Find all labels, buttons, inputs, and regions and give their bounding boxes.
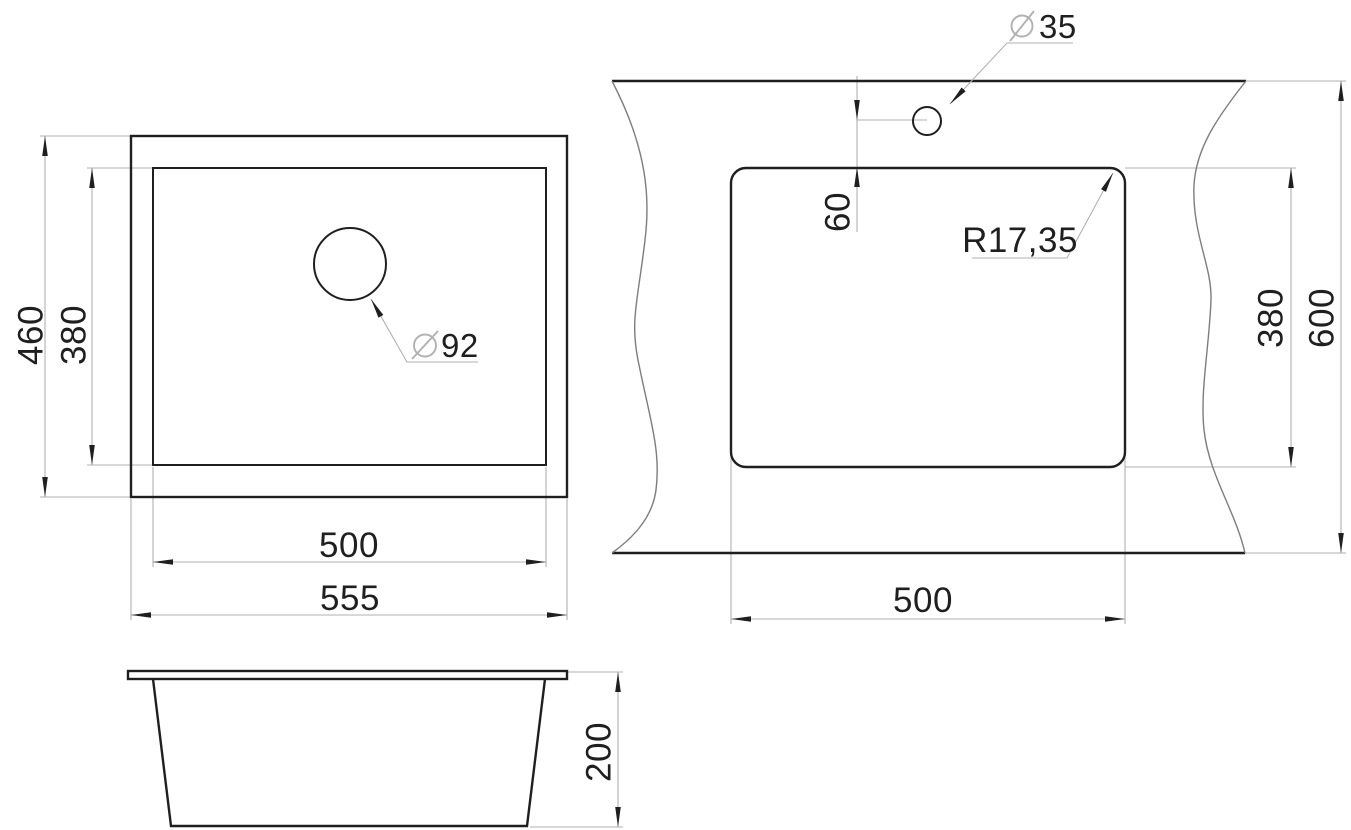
diameter-symbol-icon (1010, 11, 1034, 41)
dim-label-height: 200 (580, 722, 619, 782)
dim-label-cutout-width: 500 (893, 581, 953, 620)
faucet-diameter-label: 35 (1039, 8, 1077, 45)
cutout-view: 35 R17,35 60 380 600 500 (612, 8, 1346, 624)
diameter-symbol-icon (412, 331, 438, 359)
break-line-right (1194, 81, 1246, 553)
sink-bowl-profile (153, 679, 545, 826)
dim-label-faucet-offset: 60 (819, 192, 858, 232)
corner-radius-label: R17,35 (962, 221, 1078, 260)
dim-label-cutout-depth: 380 (1252, 288, 1291, 348)
dim-label-inner-width: 500 (319, 526, 379, 565)
sink-rim-profile (128, 671, 567, 679)
drain-hole (314, 228, 386, 300)
sink-outer-edge (131, 136, 567, 497)
top-view: 92 460 380 500 555 (12, 136, 568, 620)
faucet-hole (913, 107, 941, 135)
break-line-left (612, 81, 657, 553)
cutout-opening (731, 168, 1125, 467)
dim-label-outer-width: 555 (320, 579, 380, 618)
drain-diameter-label: 92 (441, 327, 479, 364)
sink-technical-drawing: 92 460 380 500 555 (0, 0, 1351, 830)
side-view: 200 (128, 671, 623, 827)
dim-label-outer-depth: 460 (12, 305, 51, 365)
faucet-leader-line (950, 43, 1073, 104)
dim-label-inner-depth: 380 (55, 305, 94, 365)
dim-label-counter-depth: 600 (1303, 288, 1342, 348)
drawing-canvas: 92 460 380 500 555 (0, 0, 1351, 830)
sink-bowl-edge (153, 168, 546, 465)
